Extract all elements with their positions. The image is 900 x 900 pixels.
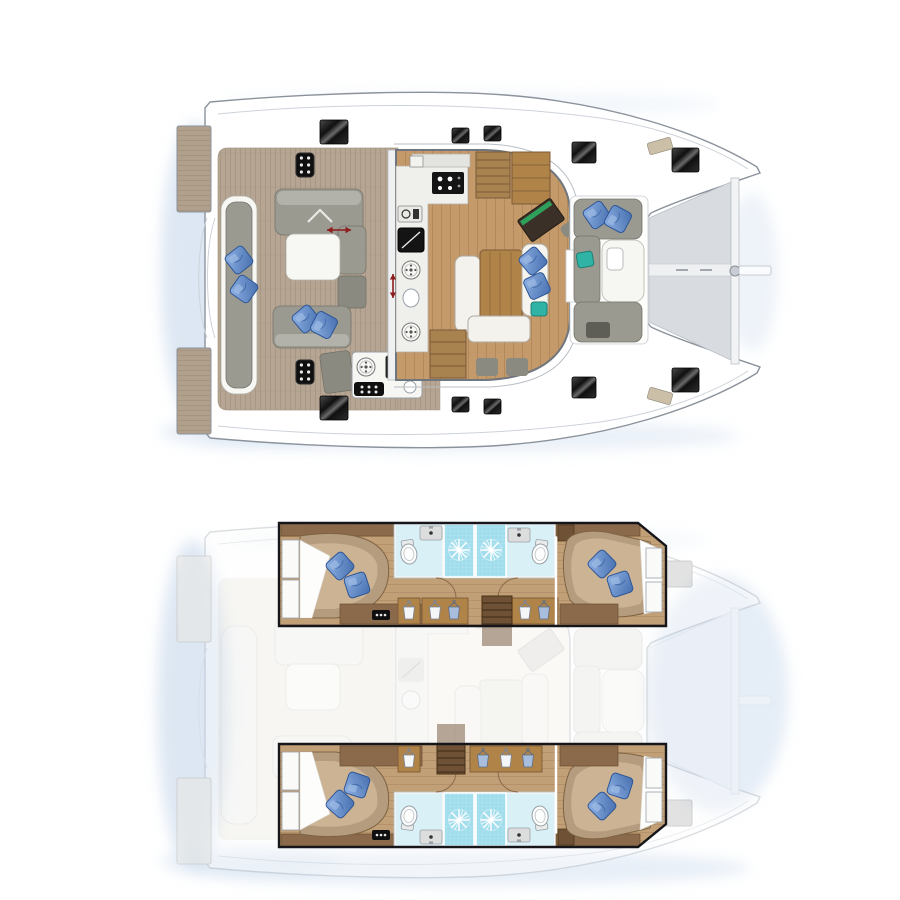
burner: [402, 323, 420, 341]
wardrobe: [422, 598, 468, 624]
galley-sink: [403, 289, 419, 307]
wardrobe: [398, 598, 420, 624]
bow-deck-hatch: [664, 561, 692, 587]
fridge-icon: [410, 156, 423, 167]
shower-rooms: [394, 523, 556, 578]
salon-stool: [506, 358, 528, 376]
catamaran-layout-sheet: [0, 0, 900, 900]
cockpit-chaise: [338, 276, 366, 308]
forward-sofa-side: [574, 236, 600, 304]
deck-hatch: [320, 396, 348, 420]
sofa-back-cushions: [277, 191, 361, 205]
trampoline-walkway: [649, 264, 731, 276]
deck-hatch: [572, 377, 596, 398]
deck-hatch: [484, 126, 501, 141]
stairs-ghost-extension: [437, 724, 465, 744]
hull-stairs: [437, 744, 465, 774]
swim-platform-starboard: [177, 126, 211, 212]
vent-grille-icon: [354, 382, 384, 396]
vent-grille-icon: [296, 360, 314, 384]
deck-hatch: [672, 368, 699, 392]
sofa-back-cushions: [275, 334, 349, 346]
forward-table: [607, 248, 623, 270]
deck-hatch: [484, 399, 501, 414]
deck-hatch: [572, 142, 596, 163]
salon-stool: [476, 358, 498, 376]
deck-hatch: [452, 128, 469, 143]
dining-table: [480, 250, 522, 322]
cockpit-corner-seat: [338, 226, 366, 274]
cockpit-lounger: [319, 350, 354, 394]
lower-deck-plan: [157, 522, 788, 886]
windlass: [730, 266, 740, 276]
hull-stairs: [482, 596, 512, 626]
bow-deck-hatch: [664, 800, 692, 826]
shower-rooms: [394, 792, 556, 847]
deck-hatch: [452, 397, 469, 412]
wardrobe: [470, 746, 542, 772]
teal-cushion: [531, 302, 547, 316]
vent-grille-icon: [296, 153, 314, 177]
cockpit-table: [286, 234, 340, 280]
layout-canvas: [0, 0, 900, 900]
bowsprit: [739, 266, 771, 275]
burner: [402, 261, 420, 279]
cooktop-icon: [432, 172, 464, 194]
upper-deck-plan: [160, 92, 778, 452]
deck-hatch: [672, 148, 699, 172]
teal-cushion: [576, 251, 594, 269]
salon: [388, 144, 581, 387]
forward-cockpit: [566, 196, 648, 344]
swim-platform-port: [177, 348, 211, 434]
forward-step: [586, 322, 610, 338]
burner: [357, 358, 375, 376]
wardrobe: [512, 598, 558, 624]
dining-bench-aft: [468, 316, 530, 342]
deck-hatch: [320, 120, 348, 144]
companionway-stairs: [476, 152, 510, 198]
stairs-ghost-extension: [482, 626, 512, 646]
wardrobe: [398, 746, 420, 772]
